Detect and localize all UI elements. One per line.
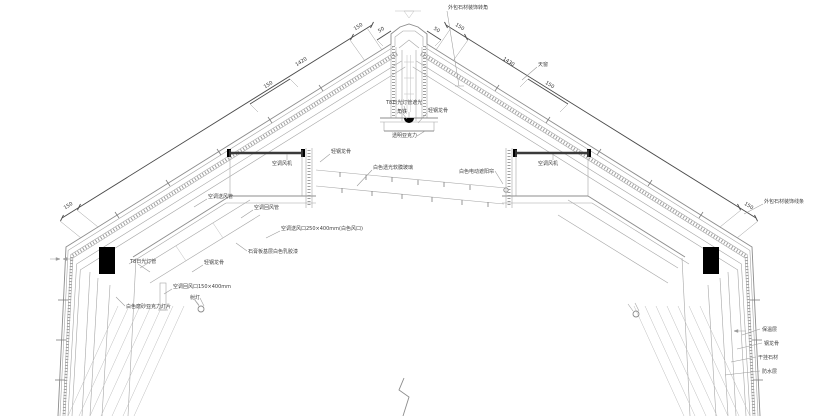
label-roller-blind: 白色电动遮阳帘 [459,168,494,175]
label-stone-cladding: 干挂石材 [758,354,778,361]
label-ac-supply-duct: 空调送风管 [208,193,233,200]
label-ac-return-outlet: 空调回风口150×400mm [173,283,231,290]
dim-right-slope-main: 1430 [502,56,516,68]
label-spotlight: 射灯 [190,294,200,301]
label-insulation: 保温层 [762,326,777,333]
dim-right-inner: 150 [544,80,555,90]
interior-ceiling-left [129,196,260,310]
dimension-lines [50,22,758,333]
label-gypsum-board: 石膏板基层白色乳胶漆 [248,248,298,255]
light-cove [380,112,438,131]
right-wall-inner [634,247,750,416]
label-acrylic-panel: 白色磨砂亚克力灯片 [126,303,171,310]
label-steel-keel-left-lower: 轻钢龙骨 [204,259,224,266]
dim-ridge-right: 50 [432,26,441,34]
ac-plenum-left [226,148,316,208]
dim-ridge-left: 50 [377,26,386,34]
label-ac-fan-left: 空调风机 [272,160,292,167]
elevation-marker-icon [395,11,421,18]
spotlight-icon-right [628,303,639,317]
wall-solid-block-right [703,247,719,274]
label-ac-supply-outlet: 空调送风口250×400mm(白色风口) [281,225,363,232]
label-waterproof: 防水层 [762,368,777,375]
label-t8-tube: T8日光灯管 [129,258,156,265]
label-ac-fan-right: 空调风机 [538,160,558,167]
interior-ceiling-right [558,196,689,283]
dimension-arrow-icon-left [50,258,73,261]
cad-drawing-canvas: 1420 150 150 150 1430 150 150 150 50 50 [0,0,818,416]
ac-plenum-right [502,148,592,208]
dimension-arrow-icon-right [734,330,746,333]
label-stone-trim-right: 外包石材装饰线条 [764,198,804,205]
label-skylight: 天窗 [538,61,548,68]
label-steel-keel-wall: 钢龙骨 [764,340,779,347]
left-wall-inner [68,247,184,416]
break-line [399,378,409,416]
label-angle-iron: 角铁 [397,108,407,115]
label-steel-keel-left-upper: 轻钢龙骨 [331,148,351,155]
label-ac-return-duct: 空调回风管 [254,204,279,211]
annotation-labels: 外包石材装饰转角 天窗 外包石材装饰线条 T8日光灯管遮光 角铁 轻钢龙骨 透明… [126,4,804,375]
label-t8-tube-shield: T8日光灯管遮光 [385,99,422,106]
label-clear-acrylic: 透明亚克力 [392,132,417,139]
ridge-cap [391,24,427,48]
dim-left-inner: 150 [263,80,274,90]
panel-joint-ticks [55,85,763,380]
wall-solid-block-left [99,247,115,274]
section-detail-drawing: 1420 150 150 150 1430 150 150 150 50 50 [0,0,818,416]
membrane-and-blind [316,170,508,207]
label-membrane: 白色透光软膜玻璃 [373,164,413,171]
label-stone-corner: 外包石材装饰转角 [448,4,488,11]
dim-left-end-bottom: 150 [63,201,74,211]
label-steel-keel-center: 轻钢龙骨 [428,107,448,114]
